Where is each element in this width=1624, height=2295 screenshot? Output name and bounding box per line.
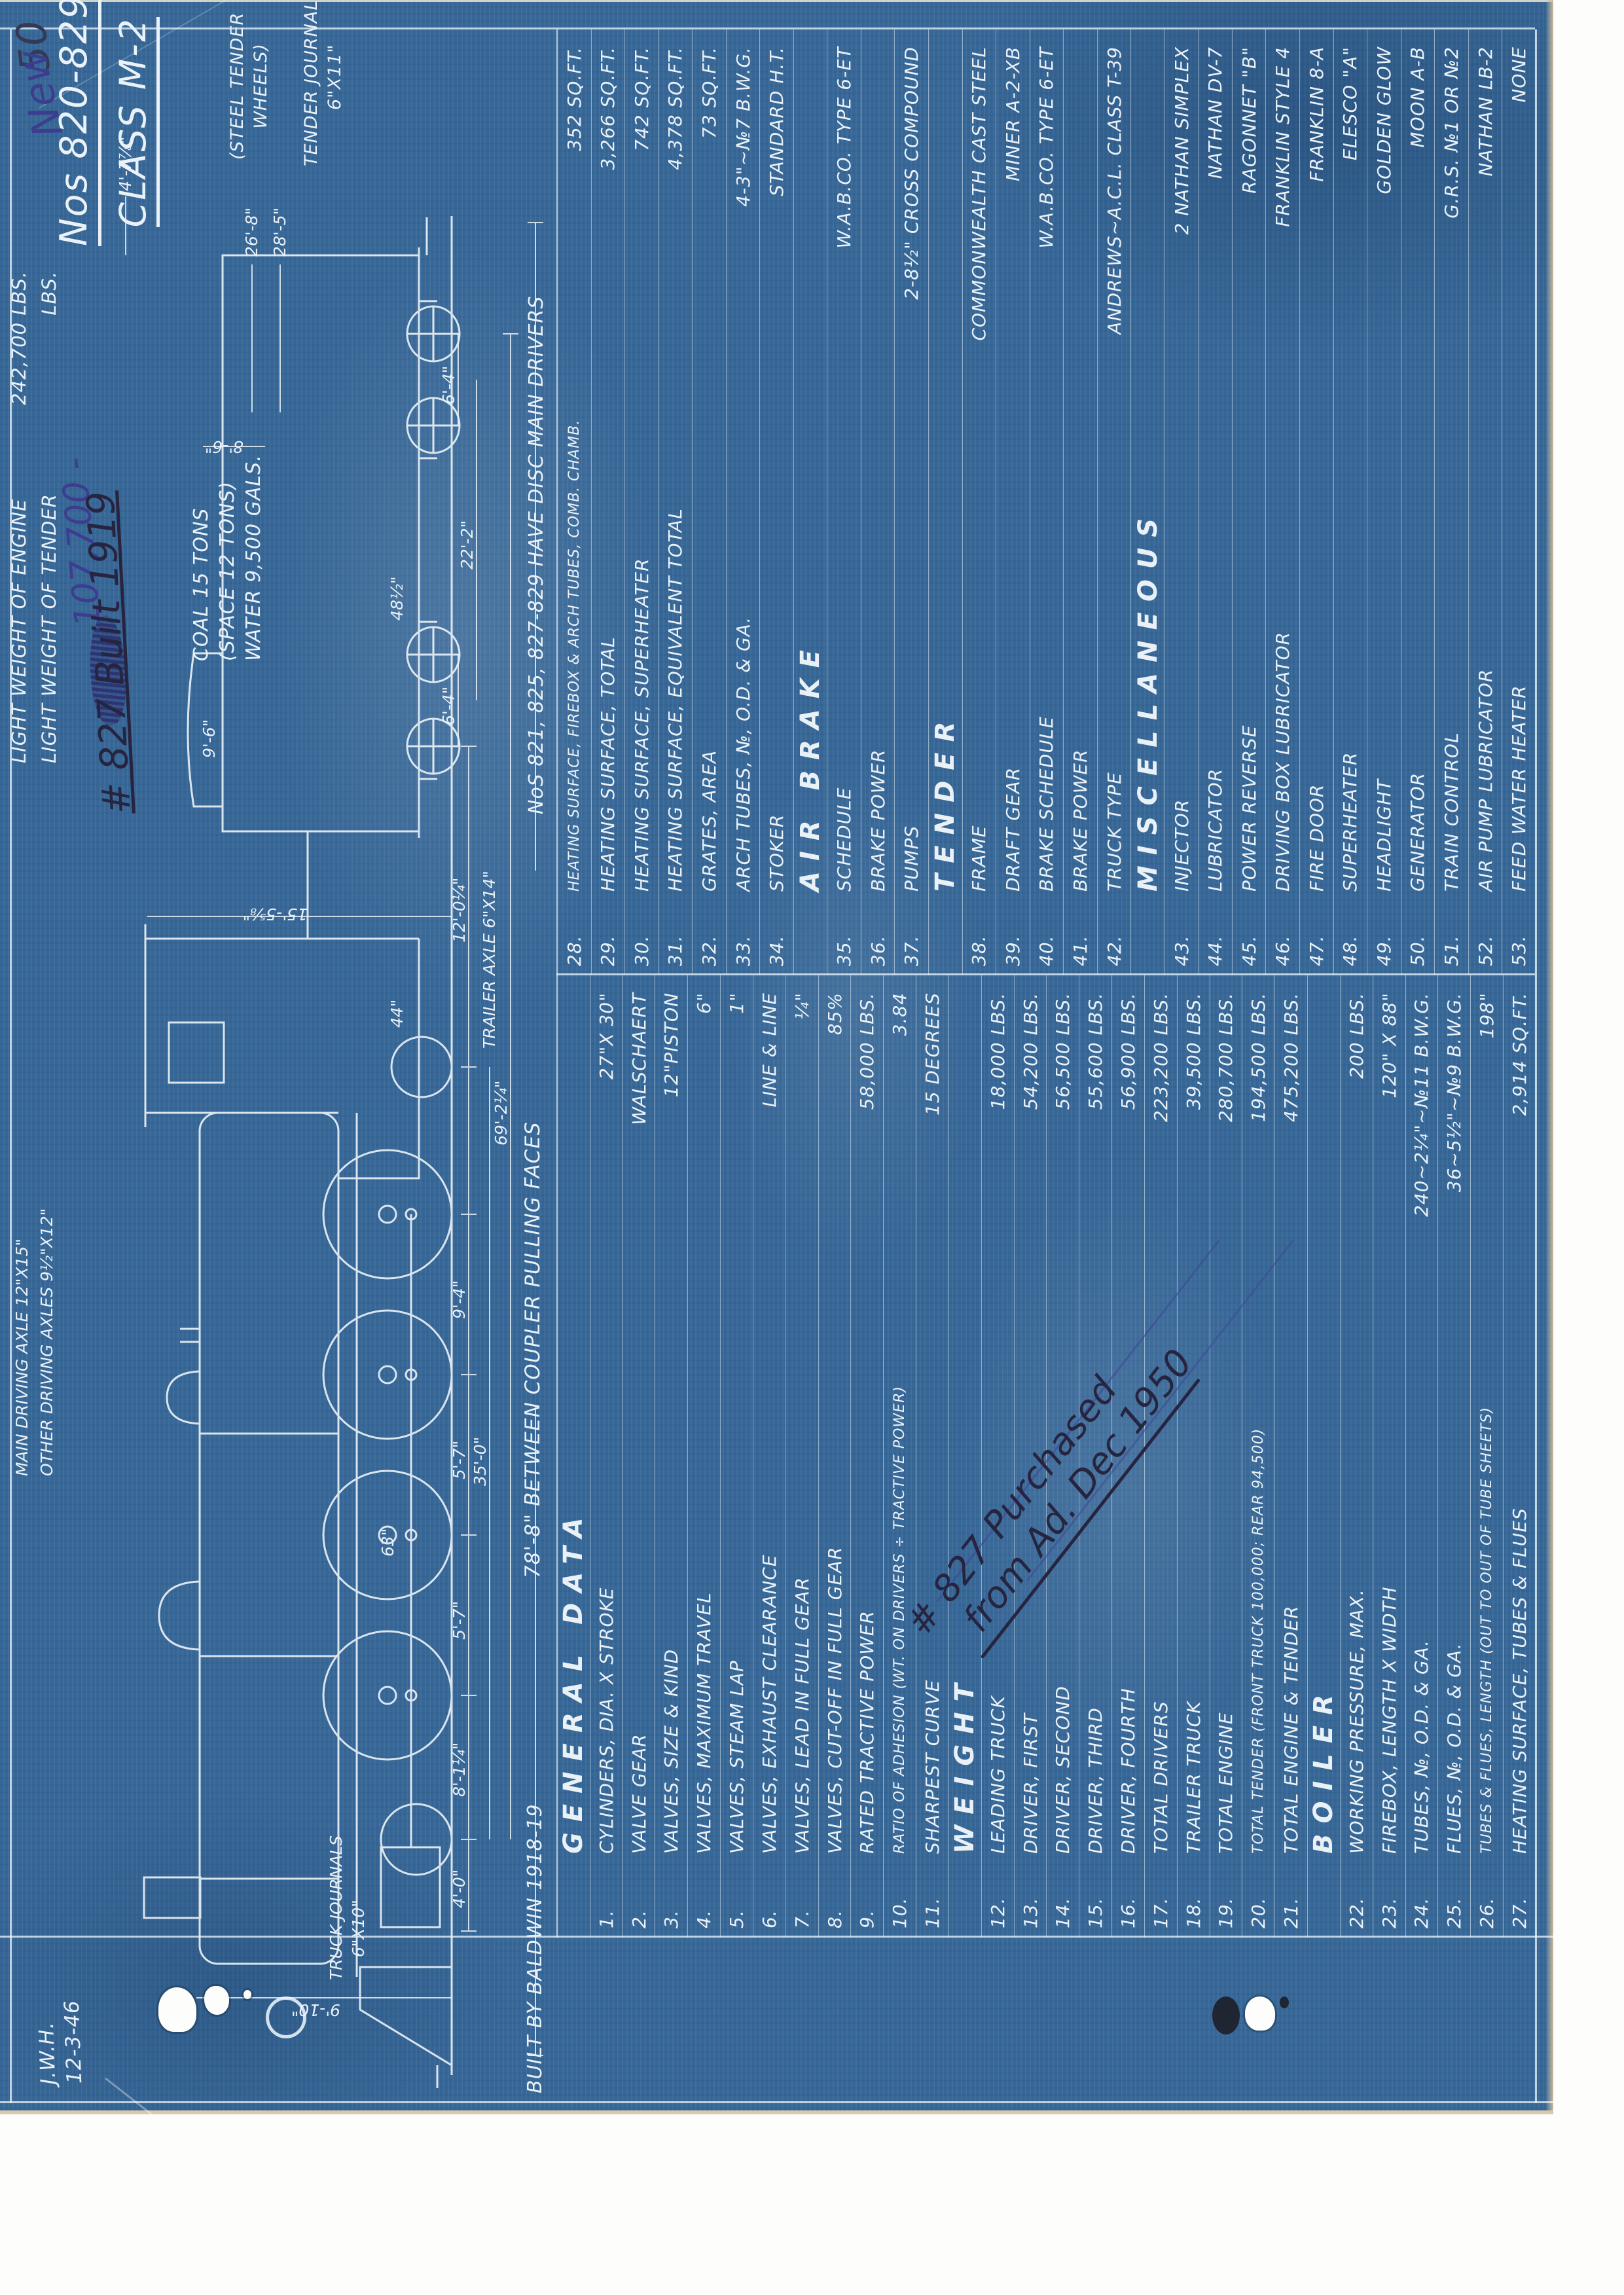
row-value: RAGONNET "B" [1238, 29, 1260, 194]
dim-label: 9'-6" [200, 719, 219, 758]
scan-margin [0, 2114, 1624, 2295]
table-row: 21. TOTAL ENGINE & TENDER 475,200 LBS. [1275, 975, 1308, 1938]
wheel-diameter-label: 48½" [388, 576, 406, 621]
table-row: 11. SHARPEST CURVE 15 DEGREES [916, 975, 949, 1938]
dim-label: 4'-0" [450, 1870, 469, 1908]
row-label: MISCELLANEOUS [1133, 46, 1163, 892]
row-number: 9. [856, 1854, 878, 1938]
row-value: 3.84 [889, 975, 911, 1036]
table-row: 27. HEATING SURFACE, TUBES & FLUES 2,914… [1504, 975, 1536, 1938]
table-row: 34. STOKER STANDARD H.T. [760, 29, 794, 975]
row-value: 3,266 SQ.FT. [597, 29, 619, 170]
row-label: WEIGHT [950, 992, 980, 1854]
row-label: TENDER [930, 46, 960, 892]
row-value: STANDARD H.T. [766, 29, 787, 196]
row-value: FRANKLIN STYLE 4 [1272, 29, 1293, 227]
row-number: 29. [597, 892, 619, 975]
row-number: 46. [1272, 892, 1293, 975]
row-label: TRAIN CONTROL [1441, 219, 1462, 892]
row-label: BRAKE POWER [1070, 46, 1091, 892]
table-row: 43. INJECTOR 2 NATHAN SIMPLEX [1165, 29, 1199, 975]
row-number: 28. [564, 892, 585, 975]
row-value: 56,500 LBS. [1052, 975, 1074, 1110]
row-label: HEATING SURFACE, EQUIVALENT TOTAL [664, 170, 686, 892]
row-value: 36~5½"~№9 B.W.G. [1443, 975, 1465, 1192]
row-number: 26. [1476, 1854, 1498, 1938]
table-row: 31. HEATING SURFACE, EQUIVALENT TOTAL 4,… [659, 29, 693, 975]
truck-journals-size: 6"X10" [349, 1900, 368, 1957]
row-number: 5. [726, 1854, 748, 1938]
table-row: WEIGHT [949, 975, 982, 1938]
row-value: 1" [726, 975, 748, 1014]
row-value: 4,378 SQ.FT. [664, 29, 686, 170]
blueprint-scan: 4'-0" 8'-1¼" 5'-7" 5'-7" 9'-4" 35'-0" 69… [0, 0, 1624, 2295]
dim-label: 22'-2" [458, 520, 477, 569]
row-value: FRANKLIN 8-A [1306, 29, 1327, 182]
row-value: 18,000 LBS. [987, 975, 1009, 1110]
row-number: 51. [1441, 892, 1462, 975]
row-number: 6. [759, 1854, 780, 1938]
row-number: 15. [1085, 1854, 1106, 1938]
coal-space: (SPACE 12 TONS) [215, 454, 241, 661]
row-label: HEATING SURFACE, SUPERHEATER [631, 151, 653, 892]
row-value: NATHAN DV-7 [1204, 29, 1226, 179]
table-row: 18. TRAILER TRUCK 39,500 LBS. [1178, 975, 1210, 1938]
row-label: INJECTOR [1171, 234, 1193, 892]
row-value: 54,200 LBS. [1020, 975, 1041, 1110]
row-value: W.A.B.CO. TYPE 6-ET [833, 29, 855, 249]
row-label: RATED TRACTIVE POWER [856, 1110, 878, 1854]
dim-label: 6'-4" [439, 366, 458, 405]
dim-label: 9'-4" [450, 1280, 469, 1319]
row-value: LINE & LINE [759, 975, 780, 1108]
table-row: TENDER [929, 29, 963, 975]
row-number: 33. [732, 892, 754, 975]
dim-label: 5'-7" [450, 1601, 469, 1640]
row-value: ANDREWS~A.C.L. CLASS T-39 [1104, 29, 1125, 334]
row-number: 7. [791, 1854, 813, 1938]
row-label: VALVES, STEAM LAP [726, 1014, 748, 1854]
row-number: 35. [833, 892, 855, 975]
engine-weight-value: 242,700 LBS. [8, 271, 30, 405]
row-number: 50. [1407, 892, 1428, 975]
row-label: STOKER [766, 196, 787, 892]
row-value: ¼" [791, 975, 813, 1020]
row-label: CYLINDERS, DIA. X STROKE [596, 1079, 617, 1854]
row-label: GRATES, AREA [698, 139, 720, 892]
axle-note-other: OTHER DRIVING AXLES 9½"X12" [37, 1208, 56, 1476]
row-label: VALVES, SIZE & KIND [660, 1098, 682, 1854]
row-label: TUBES & FLUES, LENGTH (OUT TO OUT OF TUB… [1479, 1038, 1495, 1854]
steel-tender-wheels-line1: (STEEL TENDER [226, 12, 249, 160]
row-value: WALSCHAERT [628, 975, 650, 1125]
row-value: 2,914 SQ.FT. [1509, 975, 1530, 1116]
driver-4 [323, 1150, 452, 1278]
row-label: WORKING PRESSURE, MAX. [1346, 1079, 1367, 1854]
row-number: 44. [1204, 892, 1226, 975]
table-row: 23. FIREBOX, LENGTH X WIDTH 120" X 88" [1373, 975, 1406, 1938]
row-label: VALVE GEAR [628, 1125, 650, 1854]
table-row: 2. VALVE GEAR WALSCHAERT [623, 975, 656, 1938]
table-row: 12. LEADING TRUCK 18,000 LBS. [982, 975, 1015, 1938]
row-label: BRAKE SCHEDULE [1036, 249, 1057, 892]
light-weights: LIGHT WEIGHT OF ENGINE 242,700 LBS. LIGH… [8, 271, 60, 763]
row-number: 48. [1339, 892, 1361, 975]
trailing-wheel [391, 1037, 452, 1097]
punch-hole [158, 1987, 196, 2032]
table-row: 28. HEATING SURFACE, FIREBOX & ARCH TUBE… [558, 29, 592, 975]
table-row: 9. RATED TRACTIVE POWER 58,000 LBS. [851, 975, 884, 1938]
row-number: 21. [1280, 1854, 1302, 1938]
steel-tender-wheels-note: (STEEL TENDER WHEELS) [226, 12, 273, 160]
row-number: 32. [698, 892, 720, 975]
row-number: 18. [1183, 1854, 1204, 1938]
dim-label: 28'-5" [270, 208, 289, 257]
row-number: 31. [664, 892, 686, 975]
row-value: 223,200 LBS. [1150, 975, 1172, 1122]
row-value: 85% [824, 975, 846, 1035]
table-row: 1. CYLINDERS, DIA. X STROKE 27"X 30" [590, 975, 623, 1938]
row-label: VALVES, CUT-OFF IN FULL GEAR [824, 1035, 846, 1854]
truck-journals-note: TRUCK JOURNALS [327, 1835, 346, 1980]
smokestack [144, 1877, 200, 1918]
table-row: BOILER [1308, 975, 1341, 1938]
row-label: TOTAL ENGINE [1215, 1122, 1236, 1854]
draftsman-initials: J.W.H. [33, 2000, 62, 2085]
row-value: 15 DEGREES [922, 975, 943, 1115]
table-row: 32. GRATES, AREA 73 SQ.FT. [693, 29, 727, 975]
row-value: 352 SQ.FT. [564, 29, 585, 151]
locomotive-drawing: 4'-0" 8'-1¼" 5'-7" 5'-7" 9'-4" 35'-0" 69… [0, 0, 556, 2114]
row-number: 27. [1509, 1854, 1530, 1938]
table-row: 33. ARCH TUBES, №, O.D. & GA. 4-3"~№7 B.… [727, 29, 761, 975]
row-number: 13. [1020, 1854, 1041, 1938]
pony-truck-wheel [381, 1804, 452, 1875]
row-value: 73 SQ.FT. [698, 29, 720, 139]
table-row: 46. DRIVING BOX LUBRICATOR FRANKLIN STYL… [1266, 29, 1300, 975]
steel-tender-wheels-line2: WHEELS) [249, 12, 273, 160]
row-label: FIREBOX, LENGTH X WIDTH [1379, 1098, 1400, 1854]
row-number: 20. [1248, 1854, 1269, 1938]
row-label: DRAFT GEAR [1002, 181, 1024, 892]
tender-weight-label: LIGHT WEIGHT OF TENDER [38, 494, 60, 763]
dim-label: 69'-2¼" [492, 1081, 511, 1146]
table-row: MISCELLANEOUS [1131, 29, 1165, 975]
row-label: ARCH TUBES, №, O.D. & GA. [732, 207, 754, 892]
row-value: G.R.S. №1 OR №2 [1441, 29, 1462, 219]
engine-weight-label: LIGHT WEIGHT OF ENGINE [8, 499, 30, 763]
row-label: TRAILER TRUCK [1183, 1110, 1204, 1854]
tender-weight-units: LBS. [38, 271, 60, 316]
wheel-diameter-label: 63" [378, 1528, 397, 1557]
row-value: 240~2¼"~№11 B.W.G. [1411, 975, 1432, 1217]
table-row: 24. TUBES, №, O.D. & GA. 240~2¼"~№11 B.W… [1406, 975, 1439, 1938]
cylinder [381, 1847, 440, 1927]
sand-dome [167, 1371, 200, 1424]
row-number: 14. [1052, 1854, 1074, 1938]
row-label: AIR PUMP LUBRICATOR [1475, 176, 1496, 892]
row-number: 8. [824, 1854, 846, 1938]
tender-journals-line1: TENDER JOURNALS [300, 0, 323, 166]
axle-note-main: MAIN DRIVING AXLE 12"X15" [12, 1238, 31, 1476]
row-label: FLUES, №, O.D. & GA. [1443, 1192, 1465, 1854]
table-row: 41. BRAKE POWER [1064, 29, 1098, 975]
draftsman-corner: J.W.H. 12-3-46 [33, 2000, 88, 2086]
draftsman-date: 12-3-46 [59, 2000, 88, 2084]
table-row: 35. SCHEDULE W.A.B.CO. TYPE 6-ET [827, 29, 861, 975]
row-number: 36. [867, 892, 889, 975]
table-row: 22. WORKING PRESSURE, MAX. 200 LBS. [1341, 975, 1373, 1938]
punch-ring-mark [266, 1997, 306, 2038]
table-row: AIR BRAKE [794, 29, 828, 975]
table-row: 49. HEADLIGHT GOLDEN GLOW [1367, 29, 1401, 975]
row-label: POWER REVERSE [1238, 194, 1260, 892]
table-row: 17. TOTAL DRIVERS 223,200 LBS. [1145, 975, 1178, 1938]
table-row: 30. HEATING SURFACE, SUPERHEATER 742 SQ.… [625, 29, 659, 975]
row-value: 58,000 LBS. [856, 975, 878, 1110]
row-label: HEADLIGHT [1373, 194, 1395, 892]
coupler-length-note: 78'-8" BETWEEN COUPLER PULLING FACES [521, 1121, 545, 1578]
row-number: 10. [889, 1854, 911, 1938]
table-row: 3. VALVES, SIZE & KIND 12"PISTON [655, 975, 688, 1938]
row-value: NONE [1508, 29, 1530, 103]
table-row: 20. TOTAL TENDER (FRONT TRUCK 100,000; R… [1242, 975, 1275, 1938]
row-value: 2 NATHAN SIMPLEX [1171, 29, 1193, 234]
disc-drivers-note: NoS 821, 825, 827-829 HAVE DISC MAIN DRI… [525, 296, 548, 814]
row-number: 23. [1379, 1854, 1400, 1938]
row-value: 4-3"~№7 B.W.G. [732, 29, 754, 207]
steam-dome [159, 1581, 200, 1650]
row-number: 12. [987, 1854, 1009, 1938]
row-value: 56,900 LBS. [1117, 975, 1139, 1110]
row-number: 47. [1306, 892, 1327, 975]
row-number: 16. [1117, 1854, 1139, 1938]
row-label: TOTAL DRIVERS [1150, 1122, 1172, 1854]
row-label: TOTAL TENDER (FRONT TRUCK 100,000; REAR … [1250, 1122, 1267, 1854]
row-number: 19. [1215, 1854, 1236, 1938]
row-label: BRAKE POWER [867, 46, 889, 892]
row-number: 2. [628, 1854, 650, 1938]
dim-label: 26'-8" [242, 208, 261, 257]
table-row: 38. FRAME COMMONWEALTH CAST STEEL [963, 29, 997, 975]
water-capacity: WATER 9,500 GALS. [241, 454, 267, 661]
driver-1 [323, 1631, 452, 1760]
landscape-stage: 4'-0" 8'-1¼" 5'-7" 5'-7" 9'-4" 35'-0" 69… [0, 0, 1624, 2295]
row-label: RATIO OF ADHESION (WT. ON DRIVERS ÷ TRAC… [892, 1036, 908, 1854]
row-number: 24. [1411, 1854, 1432, 1938]
table-row: 7. VALVES, LEAD IN FULL GEAR ¼" [786, 975, 819, 1938]
row-number: 34. [766, 892, 787, 975]
row-number: 53. [1508, 892, 1530, 975]
coal-capacity: COAL 15 TONS [189, 454, 215, 661]
row-number: 43. [1171, 892, 1193, 975]
tender-capacity-note: COAL 15 TONS (SPACE 12 TONS) WATER 9,500… [189, 454, 267, 661]
row-number: 42. [1104, 892, 1125, 975]
row-label: FRAME [968, 341, 990, 892]
scan-margin [1553, 0, 1624, 2295]
row-value: 194,500 LBS. [1248, 975, 1269, 1122]
row-number: 30. [631, 892, 653, 975]
dim-label: 35'-0" [471, 1437, 490, 1486]
row-value: 2-8½" CROSS COMPOUND [901, 29, 922, 300]
table-row: 44. LUBRICATOR NATHAN DV-7 [1199, 29, 1233, 975]
dim-label: 5'-7" [450, 1441, 469, 1479]
row-number: 49. [1373, 892, 1395, 975]
table-row: 10. RATIO OF ADHESION (WT. ON DRIVERS ÷ … [884, 975, 916, 1938]
table-row: 37. PUMPS 2-8½" CROSS COMPOUND [895, 29, 929, 975]
row-label: HEATING SURFACE, FIREBOX & ARCH TUBES, C… [566, 151, 583, 892]
row-value: ELESCO "A" [1339, 29, 1361, 160]
row-label: GENERAL DATA [558, 992, 588, 1854]
row-value: W.A.B.CO. TYPE 6-ET [1036, 29, 1057, 249]
table-row: 6. VALVES, EXHAUST CLEARANCE LINE & LINE [753, 975, 786, 1938]
row-label: TRUCK TYPE [1104, 334, 1125, 892]
table-row: 53. FEED WATER HEATER NONE [1502, 29, 1536, 975]
row-number: 4. [693, 1854, 715, 1938]
row-label: AIR BRAKE [795, 46, 825, 892]
row-value: 120" X 88" [1379, 975, 1400, 1098]
row-label: FEED WATER HEATER [1508, 103, 1530, 892]
boiler [200, 1113, 338, 1964]
row-value: 55,600 LBS. [1085, 975, 1106, 1110]
table-row: GENERAL DATA [558, 975, 590, 1938]
tender-journals-note: TENDER JOURNALS 6"X11" [300, 0, 347, 166]
firebox-line [338, 939, 419, 1178]
punch-hole [1245, 1997, 1275, 2031]
row-label: DRIVING BOX LUBRICATOR [1272, 227, 1293, 892]
row-number: 37. [901, 892, 922, 975]
row-value: 475,200 LBS. [1280, 975, 1302, 1122]
row-label: VALVES, LEAD IN FULL GEAR [791, 1020, 813, 1854]
row-value: COMMONWEALTH CAST STEEL [968, 29, 990, 341]
row-value: 39,500 LBS. [1183, 975, 1204, 1110]
row-label: LUBRICATOR [1204, 179, 1226, 892]
row-label: HEATING SURFACE, TOTAL [597, 170, 619, 892]
table-row: 45. POWER REVERSE RAGONNET "B" [1233, 29, 1267, 975]
ink-blob [1212, 1997, 1240, 2034]
row-label: SHARPEST CURVE [922, 1115, 943, 1854]
tender-journals-line2: 6"X11" [323, 0, 347, 166]
dim-label: 15'-5⅝" [243, 905, 308, 924]
row-label: SUPERHEATER [1339, 160, 1361, 892]
table-row: 42. TRUCK TYPE ANDREWS~A.C.L. CLASS T-39 [1098, 29, 1132, 975]
table-row: 50. GENERATOR MOON A-B [1401, 29, 1435, 975]
row-value: MINER A-2-XB [1002, 29, 1024, 181]
punch-hole [204, 1986, 229, 2015]
dim-label: 8'-6" [205, 437, 244, 456]
spec-table-right: 28. HEATING SURFACE, FIREBOX & ARCH TUBE… [556, 29, 1536, 975]
pilot-cowcatcher [360, 1967, 452, 2065]
table-row: 25. FLUES, №, O.D. & GA. 36~5½"~№9 B.W.G… [1438, 975, 1471, 1938]
row-number: 41. [1070, 892, 1091, 975]
row-number: 39. [1002, 892, 1024, 975]
row-value: 742 SQ.FT. [631, 29, 653, 151]
row-label: HEATING SURFACE, TUBES & FLUES [1509, 1116, 1530, 1854]
class-designation: CLASS M-2 [112, 17, 160, 227]
row-label: SCHEDULE [833, 249, 855, 892]
row-number: 52. [1475, 892, 1496, 975]
row-label: GENERATOR [1407, 148, 1428, 892]
row-number: 1. [596, 1854, 617, 1938]
builder-note: BUILT BY BALDWIN 1918-19 [524, 1803, 547, 2093]
table-row: 36. BRAKE POWER [861, 29, 895, 975]
dim-label: 8'-1¼" [450, 1743, 469, 1797]
table-row: 19. TOTAL ENGINE 280,700 LBS. [1210, 975, 1243, 1938]
row-number: 25. [1443, 1854, 1465, 1938]
row-value: 12"PISTON [660, 975, 682, 1098]
cab-window [169, 1022, 224, 1083]
row-value: GOLDEN GLOW [1373, 29, 1395, 194]
table-row: 8. VALVES, CUT-OFF IN FULL GEAR 85% [819, 975, 852, 1938]
row-number: 17. [1150, 1854, 1172, 1938]
dim-label: 12'-0¼" [450, 878, 469, 943]
table-row: 52. AIR PUMP LUBRICATOR NATHAN LB-2 [1469, 29, 1503, 975]
row-label: TUBES, №, O.D. & GA. [1411, 1217, 1432, 1854]
wheel-diameter-label: 44" [388, 1000, 406, 1028]
row-number: 11. [922, 1854, 943, 1938]
table-row: 5. VALVES, STEAM LAP 1" [721, 975, 753, 1938]
row-label: BOILER [1308, 992, 1339, 1854]
row-label: FIRE DOOR [1306, 182, 1327, 892]
cab [145, 939, 419, 1113]
ink-dot [1280, 1997, 1289, 2008]
row-value: 200 LBS. [1346, 975, 1367, 1079]
table-row: 4. VALVES, MAXIMUM TRAVEL 6" [688, 975, 721, 1938]
row-label: VALVES, MAXIMUM TRAVEL [693, 1014, 715, 1854]
table-row: 40. BRAKE SCHEDULE W.A.B.CO. TYPE 6-ET [1030, 29, 1064, 975]
driver-3 [323, 1310, 452, 1439]
table-row: 51. TRAIN CONTROL G.R.S. №1 OR №2 [1435, 29, 1469, 975]
row-value: 6" [693, 975, 715, 1014]
row-number: 40. [1036, 892, 1057, 975]
row-label: VALVES, EXHAUST CLEARANCE [759, 1108, 780, 1854]
row-value: 198" [1476, 975, 1498, 1038]
row-label: TOTAL ENGINE & TENDER [1280, 1122, 1302, 1854]
row-value: NATHAN LB-2 [1475, 29, 1496, 176]
table-row: 47. FIRE DOOR FRANKLIN 8-A [1300, 29, 1334, 975]
row-number: 45. [1238, 892, 1260, 975]
row-value: 27"X 30" [596, 975, 617, 1079]
row-value: MOON A-B [1407, 29, 1428, 148]
paper-nick [244, 1990, 251, 1999]
row-label: PUMPS [901, 300, 922, 892]
table-row: 39. DRAFT GEAR MINER A-2-XB [996, 29, 1030, 975]
table-row: 48. SUPERHEATER ELESCO "A" [1334, 29, 1368, 975]
trailer-axle-note: TRAILER AXLE 6"X14" [480, 871, 499, 1049]
row-number: 3. [660, 1854, 682, 1938]
row-number: 22. [1346, 1854, 1367, 1938]
table-row: 26. TUBES & FLUES, LENGTH (OUT TO OUT OF… [1471, 975, 1504, 1938]
dim-label: 6'-4" [439, 687, 458, 725]
row-number: 38. [968, 892, 990, 975]
row-value: 280,700 LBS. [1215, 975, 1236, 1122]
table-row: 29. HEATING SURFACE, TOTAL 3,266 SQ.FT. [592, 29, 626, 975]
